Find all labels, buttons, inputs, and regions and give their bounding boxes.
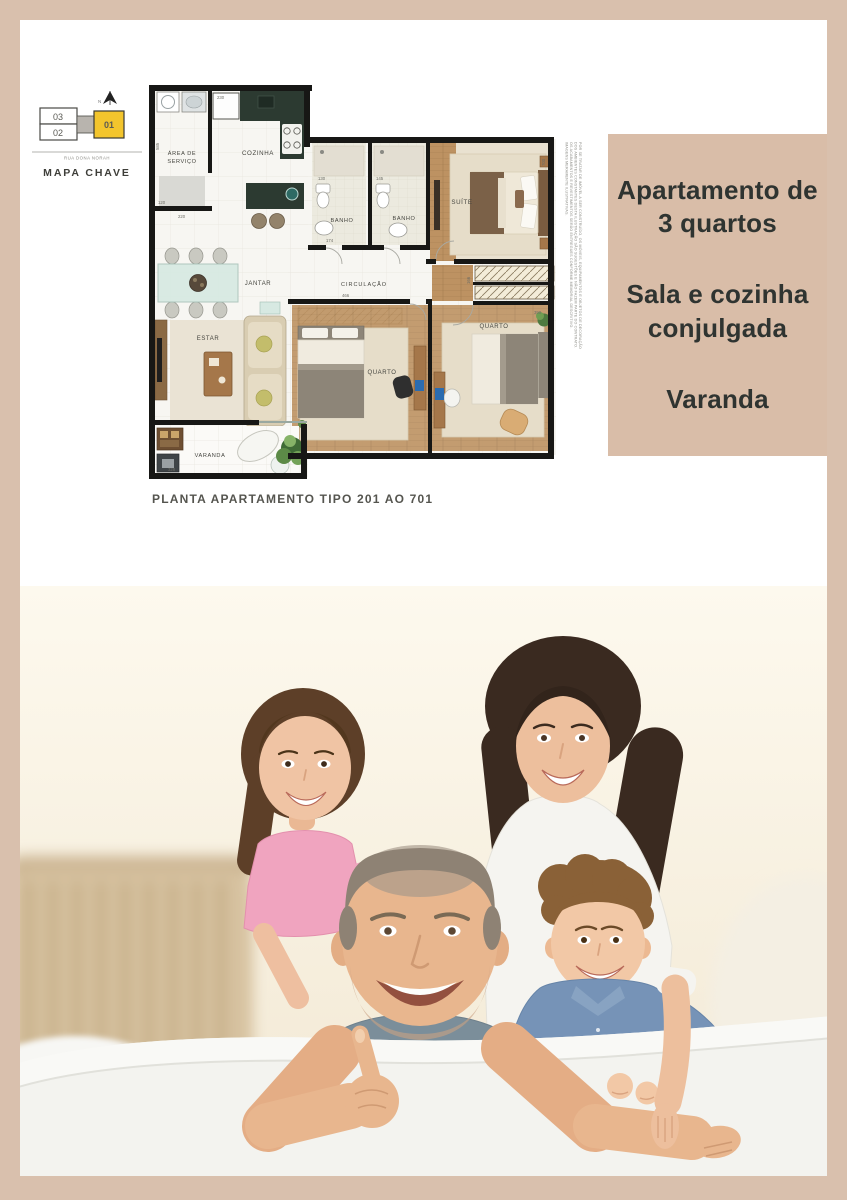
key-map-core xyxy=(77,116,94,133)
room-label-suite: SUÍTE xyxy=(451,199,472,206)
living-area: ESTAR xyxy=(155,302,286,426)
balcony: VARANDA xyxy=(155,424,305,474)
plan-disclaimer: POR SE TRATAR DE IMÓVEL A SER CONSTRUÍDO… xyxy=(565,142,584,349)
dim-banho1-w: 174 xyxy=(326,238,334,243)
suite-room: SUÍTE xyxy=(430,143,552,261)
disclaimer-line: DOS AMBIENTES CONSTANTES DESTA ILUSTRAÇÃ… xyxy=(574,142,579,348)
disclaimer-line: POR SE TRATAR DE IMÓVEL A SER CONSTRUÍDO… xyxy=(578,142,583,349)
dim-banho2: 145 xyxy=(376,176,384,181)
dim-servico-w: 220 xyxy=(178,214,186,219)
plan-caption: PLANTA APARTAMENTO TIPO 201 AO 701 xyxy=(152,492,433,506)
unit-01-label: 01 xyxy=(104,120,114,130)
feature-line-rooms: Apartamento de 3 quartos xyxy=(614,174,821,242)
disclaimer-line: OS ACABAMENTOS E REVESTIMENTOS SERÃO ENT… xyxy=(569,142,574,329)
dim-varanda-w: 328 xyxy=(168,467,176,472)
flyer-page: N 03 02 01 RUA DONA NORAH MAPA CHAVE xyxy=(0,0,847,1200)
bedroom-1: QUARTO xyxy=(292,305,428,451)
room-label-estar: ESTAR xyxy=(197,336,220,342)
svg-text:N: N xyxy=(98,99,101,104)
dim-suite-side: 700 xyxy=(541,158,546,166)
flyer-content: N 03 02 01 RUA DONA NORAH MAPA CHAVE xyxy=(20,20,827,1176)
feature-line-balcony: Varanda xyxy=(666,383,769,417)
family-photo xyxy=(20,586,827,1176)
room-label-banho1: BANHO xyxy=(331,218,354,224)
dim-quarto2-w: 390 xyxy=(534,310,542,315)
feature-box: Apartamento de 3 quartos Sala e cozinha … xyxy=(608,134,827,456)
key-map-unit-03: 03 xyxy=(40,108,77,124)
unit-02-label: 02 xyxy=(53,128,63,138)
unit-03-label: 03 xyxy=(53,112,63,122)
dim-hall-side: 166 xyxy=(466,276,471,284)
room-label-quarto1: QUARTO xyxy=(367,370,396,376)
room-label-varanda: VARANDA xyxy=(195,453,226,459)
dim-servico-h: 120 xyxy=(158,200,166,205)
room-label-quarto2: QUARTO xyxy=(479,324,508,330)
dim-hall-w: 466 xyxy=(342,293,350,298)
key-map-title: MAPA CHAVE xyxy=(43,167,131,179)
street-label: RUA DONA NORAH xyxy=(64,156,110,161)
feature-line-kitchen: Sala e cozinha conjulgada xyxy=(614,278,821,346)
room-label-circulacao: CIRCULAÇÃO xyxy=(341,281,387,288)
bedroom-2: QUARTO xyxy=(432,305,551,451)
key-map-unit-02: 02 xyxy=(40,124,77,140)
dim-fridge: 230 xyxy=(217,95,225,100)
floor-plan: SUÍTE xyxy=(146,80,586,492)
disclaimer-line: IMAGENS MERAMENTE ILUSTRATIVAS. xyxy=(565,142,569,216)
key-map: N 03 02 01 RUA DONA NORAH MAPA CHAVE xyxy=(28,88,148,200)
room-label-servico-2: SERVIÇO xyxy=(167,159,196,165)
room-label-cozinha: COZINHA xyxy=(242,150,274,157)
key-map-unit-01-highlighted: 01 xyxy=(94,111,124,138)
room-label-servico-1: ÁREA DE xyxy=(168,150,196,157)
dim-banho1: 130 xyxy=(318,176,326,181)
room-label-banho2: BANHO xyxy=(393,216,416,222)
dim-servico-side: 585 xyxy=(155,142,160,150)
room-label-jantar: JANTAR xyxy=(245,281,272,287)
north-arrow-icon: N xyxy=(98,91,117,105)
